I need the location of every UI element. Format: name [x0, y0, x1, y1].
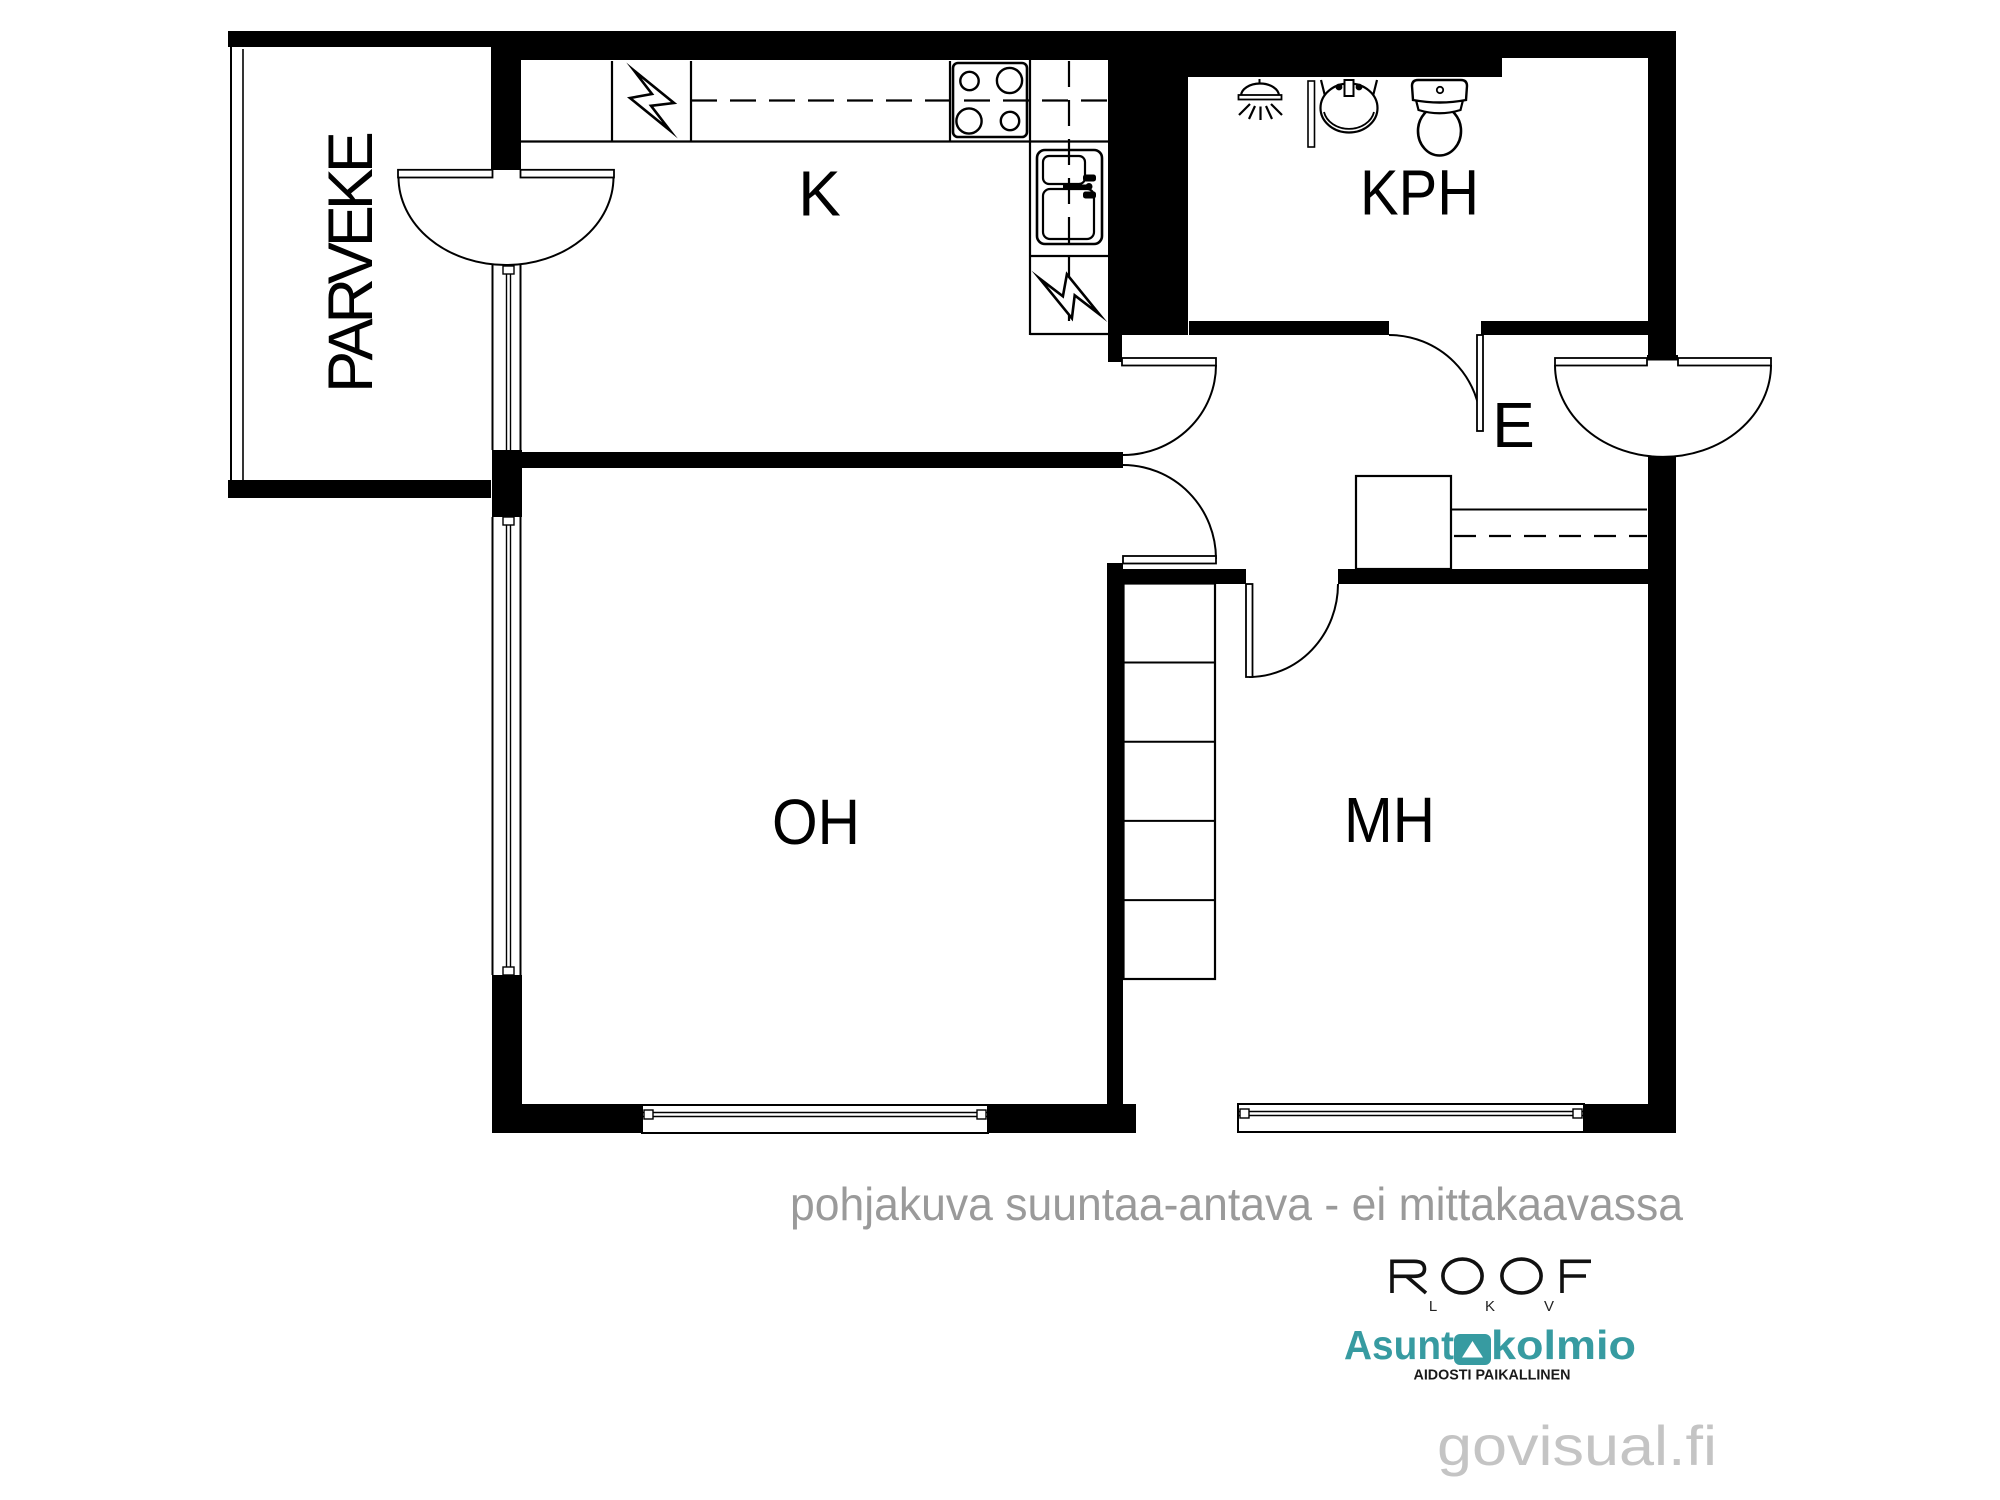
svg-text:PARVEKE: PARVEKE	[316, 133, 386, 393]
svg-text:V: V	[1544, 1298, 1554, 1315]
svg-text:govisual.fi: govisual.fi	[1437, 1414, 1717, 1477]
svg-text:K: K	[798, 158, 841, 230]
svg-text:AIDOSTI PAIKALLINEN: AIDOSTI PAIKALLINEN	[1414, 1367, 1571, 1384]
svg-text:K: K	[1485, 1298, 1495, 1315]
svg-text:E: E	[1492, 389, 1535, 461]
svg-text:Asunt: Asunt	[1344, 1322, 1454, 1368]
svg-text:pohjakuva suuntaa-antava - ei: pohjakuva suuntaa-antava - ei mittakaava…	[790, 1178, 1683, 1230]
svg-text:OH: OH	[772, 786, 860, 858]
svg-text:MH: MH	[1344, 784, 1435, 856]
svg-text:L: L	[1429, 1298, 1437, 1315]
svg-text:KPH: KPH	[1360, 157, 1479, 229]
svg-text:kolmio: kolmio	[1491, 1322, 1636, 1368]
